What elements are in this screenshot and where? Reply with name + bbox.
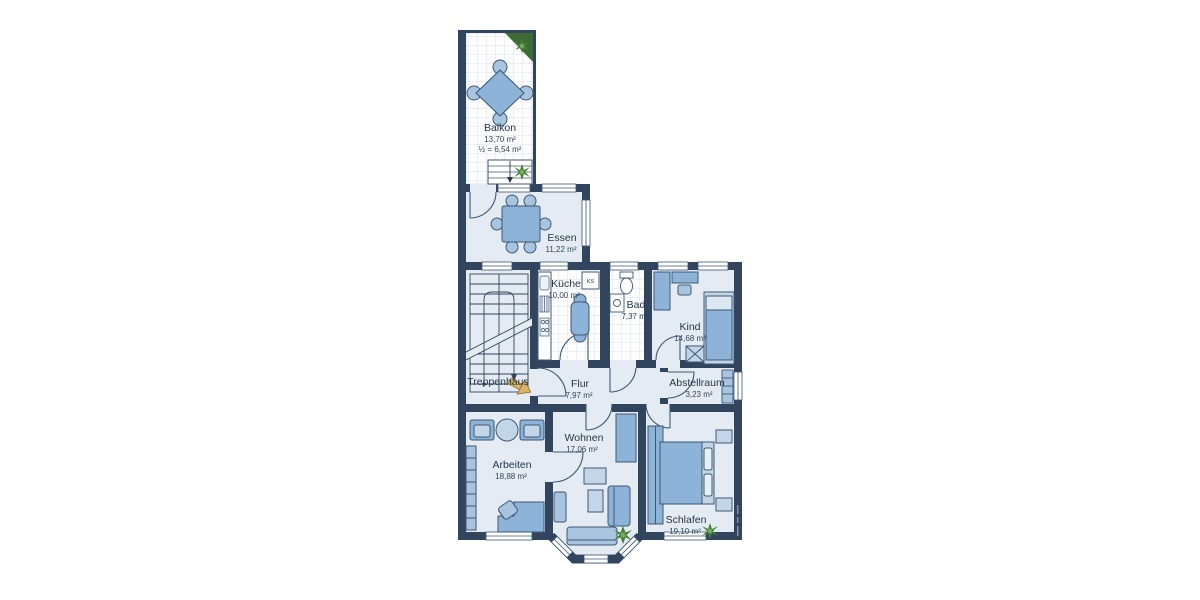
desk-icon [672, 272, 698, 283]
flur-label: Flur [571, 378, 590, 390]
wall-wohnen-schlafen [638, 412, 646, 540]
abstellraum-label: Abstellraum [669, 377, 725, 389]
floor-plan-svg: KS [0, 0, 1200, 600]
balkon-rail-top [466, 30, 536, 33]
chair-icon [524, 241, 536, 253]
essen-label: Essen [547, 232, 576, 244]
window-arbeiten-bottom [486, 532, 532, 540]
armchair-icon [470, 420, 494, 440]
dining-table-icon [502, 206, 540, 242]
balkon-area: 13,70 m² [484, 135, 516, 144]
table-icon [571, 302, 589, 335]
sink-icon [540, 276, 549, 290]
desk-chair-icon [678, 285, 691, 295]
chair-icon [506, 195, 518, 207]
wall-kueche-bad [600, 262, 610, 368]
bad-label: Bad [627, 299, 646, 311]
chair-icon [506, 241, 518, 253]
armchair-icon [554, 492, 566, 522]
window-essen-top [542, 184, 576, 192]
stove-icon [540, 318, 549, 336]
opening-balkon [470, 184, 496, 192]
balkon-area-half: ½ = 6,54 m² [479, 145, 522, 154]
kueche-table-set [571, 294, 589, 342]
schlafen-label: Schlafen [666, 514, 707, 526]
opening-kueche [560, 360, 588, 368]
kind-label: Kind [679, 321, 700, 333]
toilet-icon [620, 272, 633, 294]
washing-machine-icon [610, 294, 624, 312]
floor-plan-canvas: KS [0, 0, 1200, 600]
balkon-steps [488, 160, 532, 184]
wall-right [734, 262, 742, 540]
opening-schlafen [646, 404, 670, 412]
bay-sofa-icon [567, 527, 617, 545]
opening-kind [656, 360, 680, 368]
window-treppenhaus-interior [482, 262, 512, 270]
sofa-icon [608, 486, 630, 526]
essen-area: 11,22 m² [546, 245, 577, 254]
balkon-rail-right [533, 30, 536, 184]
opening-treppenhaus [530, 369, 538, 396]
wohnen-area: 17,06 m² [566, 445, 598, 454]
arbeiten-area: 18,88 m² [495, 472, 527, 481]
window-essen-balkon [498, 184, 530, 192]
window-abstellraum-right [734, 372, 742, 400]
wardrobe-icon [654, 272, 670, 310]
bad-area: 7,37 m² [621, 312, 648, 321]
opening-bad [610, 360, 636, 368]
watermark [737, 505, 739, 536]
arbeiten-label: Arbeiten [492, 459, 531, 471]
bed-icon [704, 292, 734, 364]
wall-left [458, 30, 466, 540]
balkon-label: Balkon [484, 122, 516, 134]
treppenhaus-label: Treppenhaus [467, 376, 529, 388]
schlafen-area: 19,10 m² [669, 527, 701, 536]
opening-wohnen [586, 404, 612, 412]
window-kueche-interior [540, 262, 568, 270]
fridge-label: KS [587, 279, 595, 285]
window-bad-top [610, 262, 638, 270]
window-essen-right [582, 200, 590, 246]
window-kind-top-2 [698, 262, 728, 270]
window-kind-top-1 [658, 262, 688, 270]
side-table-icon [588, 490, 603, 512]
cabinet-icon [616, 414, 636, 462]
chair-icon [491, 218, 503, 230]
flur-area: 7,97 m² [565, 391, 592, 400]
flur-floor [538, 368, 660, 404]
kueche-area: 10,00 m² [548, 291, 580, 300]
double-bed-icon [660, 442, 714, 504]
kind-area: 14,68 m² [674, 334, 706, 343]
side-table-icon [686, 346, 704, 362]
coffee-table-icon [584, 468, 606, 484]
kueche-label: Küche [551, 278, 581, 290]
round-table-icon [496, 419, 518, 441]
nightstand-icon [716, 498, 732, 511]
chair-icon [524, 195, 536, 207]
armchair-icon [520, 420, 544, 440]
opening-arbeiten [545, 452, 553, 482]
nightstand-icon [716, 430, 732, 443]
chair-icon [539, 218, 551, 230]
abstellraum-area: 3,23 m² [685, 390, 712, 399]
opening-abstellraum [660, 372, 668, 398]
bookshelf-icon [466, 446, 476, 530]
window-bay-bottom [584, 555, 608, 563]
wohnen-label: Wohnen [565, 432, 604, 444]
